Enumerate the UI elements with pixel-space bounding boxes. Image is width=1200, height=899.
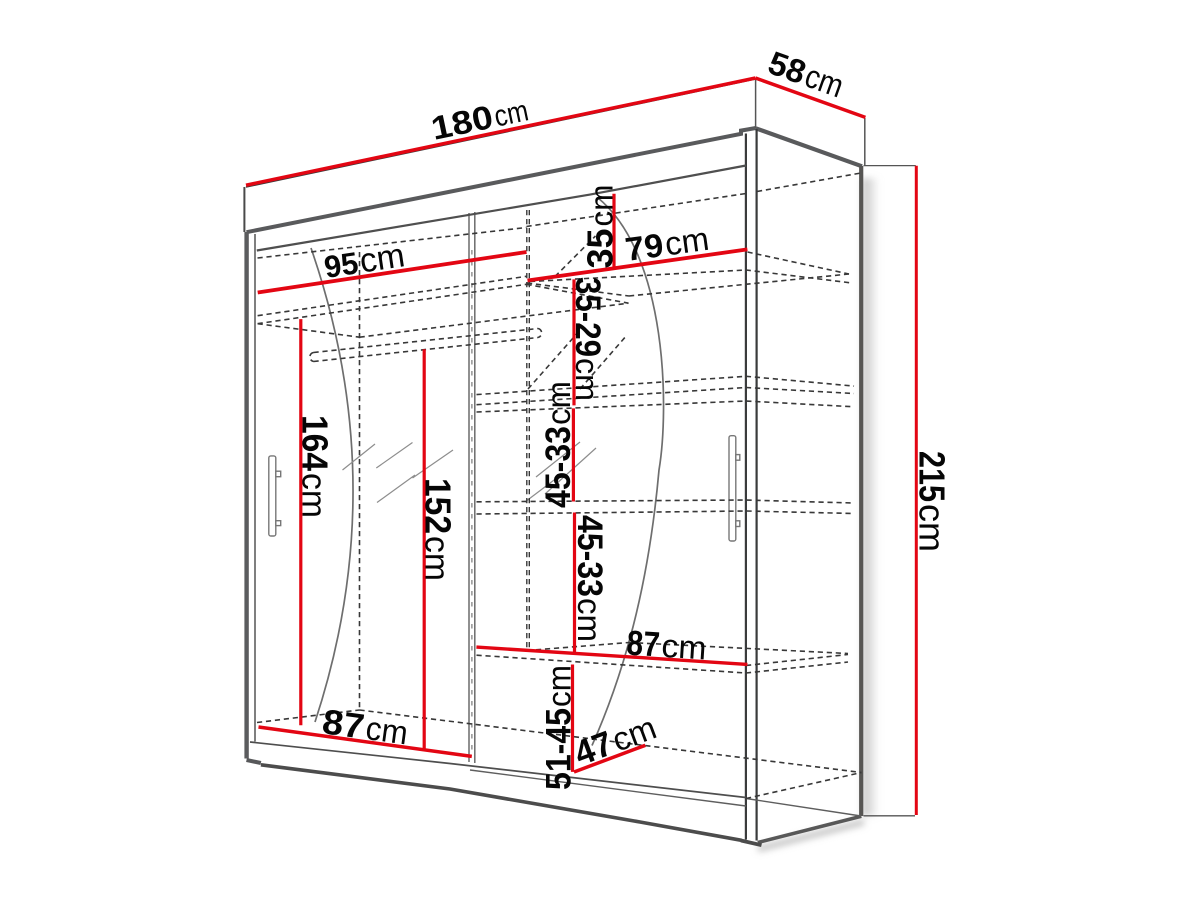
- svg-text:cm: cm: [660, 627, 707, 667]
- svg-text:cm: cm: [540, 381, 577, 425]
- svg-text:cm: cm: [364, 709, 411, 751]
- svg-text:95: 95: [322, 245, 361, 285]
- svg-text:164: 164: [295, 415, 336, 471]
- svg-text:152: 152: [418, 478, 459, 534]
- svg-text:cm: cm: [584, 185, 620, 227]
- svg-text:79: 79: [623, 226, 666, 268]
- svg-text:35: 35: [580, 229, 621, 269]
- svg-text:cm: cm: [295, 473, 333, 518]
- svg-text:cm: cm: [662, 220, 711, 263]
- svg-text:180: 180: [428, 98, 496, 147]
- svg-text:cm: cm: [912, 504, 953, 552]
- svg-text:cm: cm: [357, 236, 407, 280]
- svg-text:35-29: 35-29: [568, 277, 607, 357]
- svg-text:cm: cm: [571, 598, 608, 642]
- svg-text:cm: cm: [491, 94, 531, 133]
- svg-text:87: 87: [625, 624, 660, 665]
- svg-text:45-33: 45-33: [539, 426, 578, 508]
- svg-text:cm: cm: [607, 708, 661, 758]
- svg-text:87: 87: [320, 702, 367, 746]
- svg-text:45-33: 45-33: [570, 515, 609, 597]
- svg-text:215: 215: [912, 451, 953, 502]
- svg-text:cm: cm: [418, 536, 456, 581]
- svg-text:cm: cm: [541, 665, 578, 707]
